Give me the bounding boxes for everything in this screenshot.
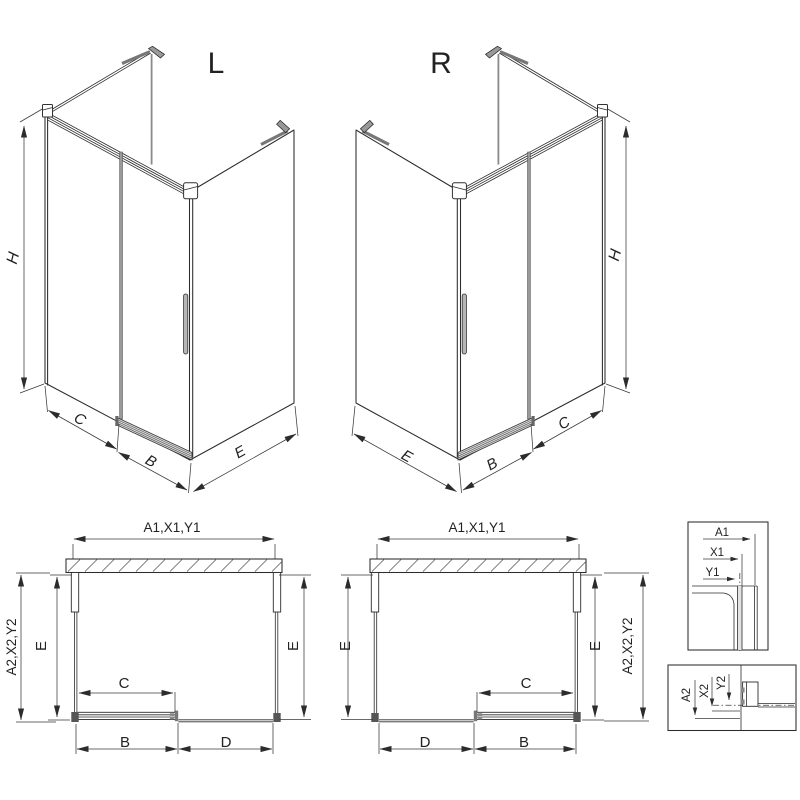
plan-view-right-geometry — [341, 539, 604, 754]
plan-right-outer-dim: A2,X2,Y2 — [620, 617, 635, 674]
technical-drawing-page: L R H C B E H E B C A1,X1,Y1 A2,X2,Y2 E … — [0, 0, 800, 800]
plan-view-left-geometry — [48, 539, 311, 754]
iso-right-title: R — [430, 47, 452, 80]
iso-left-dim-h: H — [4, 250, 23, 266]
door-handle — [184, 294, 188, 354]
detail-box-top-profile — [688, 522, 768, 651]
iso-view-right-geometry — [352, 46, 630, 493]
plan-right-depth-left: E — [337, 641, 354, 651]
sliding-door-track — [77, 712, 178, 719]
detail-top-dim-x1: X1 — [710, 547, 724, 559]
detail-top-dim-y1: Y1 — [705, 567, 719, 579]
detail-bottom-dim-x2: X2 — [699, 684, 711, 698]
plan-left-width-dim: A1,X1,Y1 — [143, 520, 200, 535]
plan-right-bottom-left: D — [420, 734, 431, 751]
iso-right-dim-h: H — [606, 247, 625, 263]
top-rail — [48, 113, 190, 197]
plan-left-depth-right: E — [285, 641, 302, 651]
plan-left-outer-dim: A2,X2,Y2 — [4, 618, 19, 675]
plan-left-door-dim: C — [119, 675, 130, 692]
iso-left-dim-c: C — [71, 409, 89, 429]
corner-cap — [184, 183, 198, 199]
plan-left-bottom-right: D — [221, 734, 232, 751]
door-seam-profile — [120, 152, 123, 419]
detail-top-dim-a1: A1 — [715, 527, 729, 539]
wall-bracket — [277, 120, 290, 132]
plan-right-door-dim: C — [521, 675, 532, 692]
iso-left-dim-e: E — [232, 442, 250, 462]
plan-right-depth-right: E — [587, 641, 604, 651]
plan-right-bottom-right: B — [519, 734, 529, 751]
plan-outer-dims — [16, 573, 649, 722]
iso-right-dim-b: B — [484, 455, 501, 475]
iso-view-left-geometry — [20, 46, 298, 493]
iso-left-dim-b: B — [142, 452, 159, 472]
iso-right-dim-e: E — [398, 447, 416, 467]
iso-right-dim-c: C — [555, 413, 573, 433]
wall-section — [66, 559, 282, 573]
plan-right-width-dim: A1,X1,Y1 — [448, 520, 505, 535]
iso-left-title: L — [208, 47, 225, 80]
detail-bottom-dim-y2: Y2 — [716, 676, 728, 690]
technical-drawing: L R H C B E H E B C A1,X1,Y1 A2,X2,Y2 E … — [0, 0, 800, 800]
plan-left-depth-left: E — [33, 641, 50, 651]
plan-left-bottom-left: B — [120, 734, 130, 751]
detail-bottom-dim-a2: A2 — [681, 688, 693, 702]
